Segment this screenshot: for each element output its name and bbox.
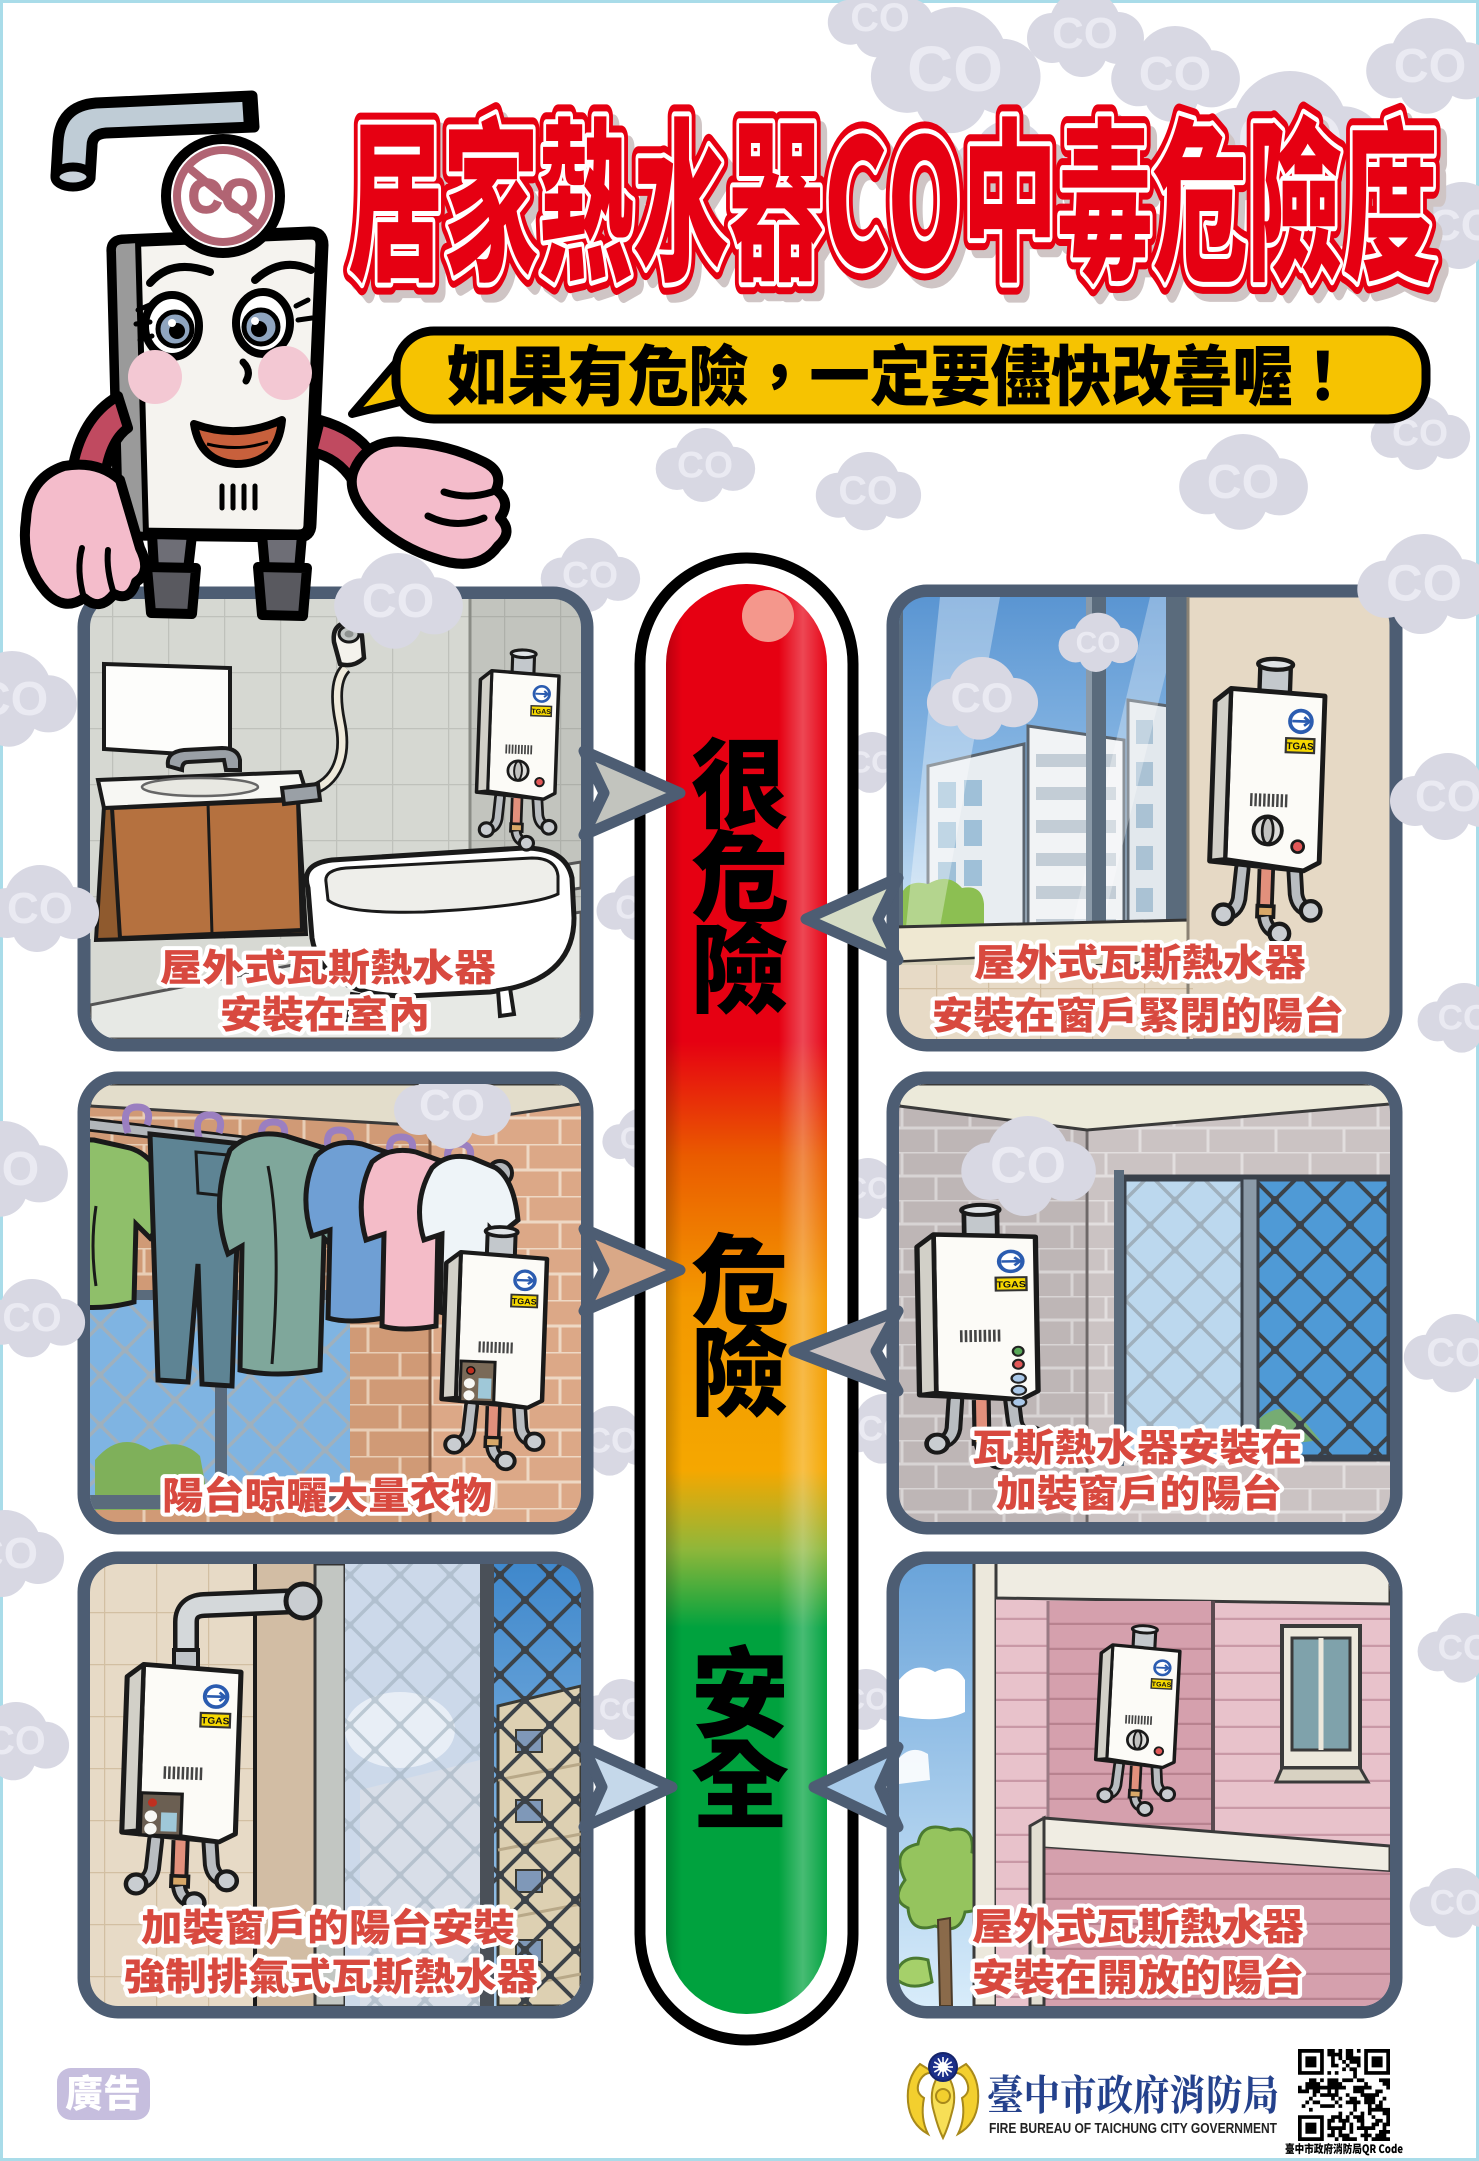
- svg-text:TGAS: TGAS: [201, 1716, 230, 1728]
- svg-text:TGAS: TGAS: [1152, 1681, 1172, 1689]
- svg-text:TGAS: TGAS: [531, 708, 551, 716]
- svg-text:TGAS: TGAS: [996, 1280, 1026, 1291]
- svg-text:FIRE BUREAU OF TAICHUNG CITY G: FIRE BUREAU OF TAICHUNG CITY GOVERNMENT: [989, 2121, 1277, 2137]
- svg-text:TGAS: TGAS: [1286, 741, 1314, 753]
- svg-text:TGAS: TGAS: [512, 1296, 538, 1306]
